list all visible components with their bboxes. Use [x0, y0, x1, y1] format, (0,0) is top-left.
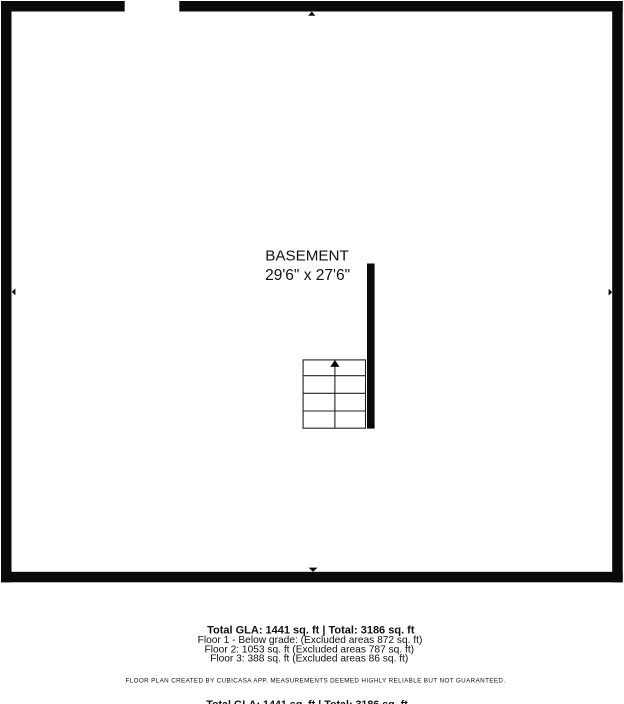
svg-text:FLOOR PLAN CREATED BY CUBICASA: FLOOR PLAN CREATED BY CUBICASA APP. MEAS…: [126, 678, 506, 685]
svg-text:29'6" x 27'6": 29'6" x 27'6": [265, 267, 350, 284]
svg-text:Floor 3: 388 sq. ft (Excluded: Floor 3: 388 sq. ft (Excluded areas 86 s…: [210, 654, 408, 665]
svg-text:BASEMENT: BASEMENT: [265, 247, 349, 264]
svg-text:Total GLA: 1441 sq. ft | Total: Total GLA: 1441 sq. ft | Total: 3186 sq.…: [206, 699, 408, 704]
